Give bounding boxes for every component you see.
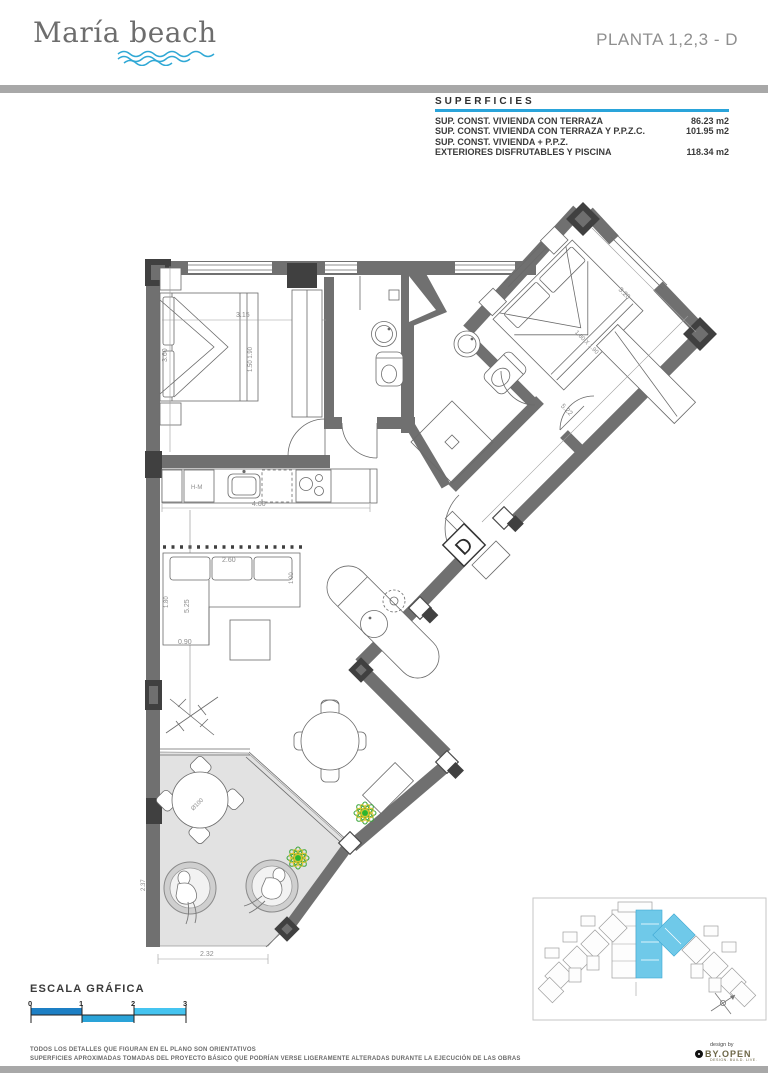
scale-bar: ESCALA GRÁFICA 0 1 2 3 (28, 982, 187, 1023)
dim-kitchen-width: 4.00 (252, 501, 266, 508)
dim-chaise-depth: 1.80 (164, 596, 170, 608)
dim-chaise-width: 0.90 (178, 639, 192, 646)
plant-sticks-icon (166, 697, 218, 735)
design-by-label: design by (695, 1042, 765, 1048)
plant-flower-icon (354, 802, 376, 824)
scale-tick-1: 1 (79, 999, 83, 1008)
footer-divider (0, 1066, 768, 1073)
disclaimer-text: TODOS LOS DETALLES QUE FIGURAN EN EL PLA… (30, 1046, 521, 1064)
dim-sofa-width: 2.60 (222, 557, 236, 564)
byopen-logo-icon (695, 1050, 703, 1058)
scale-tick-2: 2 (131, 999, 135, 1008)
dim-living-depth: 5.25 (184, 599, 191, 613)
designer-credit: design by BY.OPEN DESIGN. BUILD. LIVE. (695, 1042, 765, 1062)
disclaimer-line2: SUPERFICIES APROXIMADAS TOMADAS DEL PROY… (30, 1055, 521, 1064)
bedroom2: 3.15 3.60 1.50 1.90 (160, 266, 326, 456)
dim-terrace-height: 2.37 (141, 879, 147, 891)
dim-sofa-depth: 1.00 (289, 572, 295, 584)
scale-tick-0: 0 (28, 999, 32, 1008)
disclaimer-line1: TODOS LOS DETALLES QUE FIGURAN EN EL PLA… (30, 1046, 521, 1055)
dim-bed2-size: 1.50 1.90 (248, 346, 254, 372)
scale-tick-3: 3 (183, 999, 187, 1008)
dim-terrace-width: 2.32 (200, 951, 214, 958)
appliance-label: H-M (191, 485, 202, 491)
dim-bedroom2-depth: 3.60 (162, 348, 169, 362)
dim-bedroom2-width: 3.15 (236, 312, 250, 319)
key-plan-inset (533, 898, 766, 1020)
floor-plan-drawing: 3.15 3.60 1.50 1.90 (0, 0, 768, 1086)
bathroom2 (342, 276, 403, 458)
scale-bar-title: ESCALA GRÁFICA (30, 982, 145, 995)
dining-table (294, 700, 366, 782)
